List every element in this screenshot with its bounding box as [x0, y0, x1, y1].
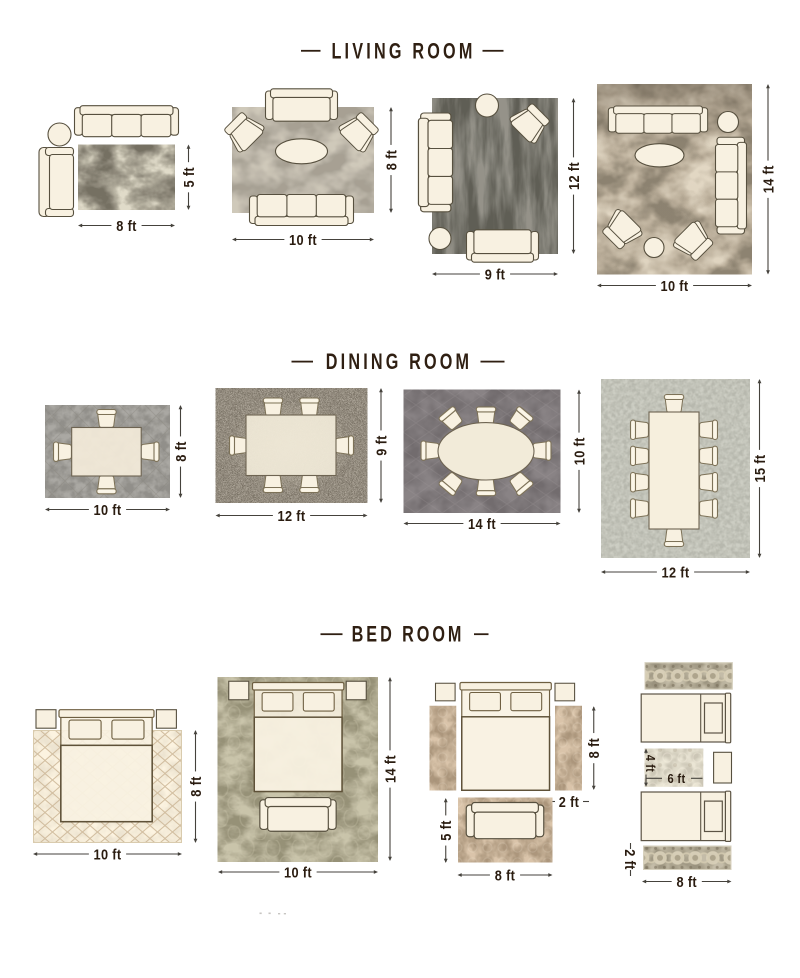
svg-text:9 ft: 9 ft: [372, 435, 389, 455]
svg-text:8 ft: 8 ft: [382, 150, 399, 170]
svg-text:14 ft: 14 ft: [759, 165, 776, 193]
svg-text:9 ft: 9 ft: [485, 265, 505, 282]
svg-text:15 ft: 15 ft: [751, 455, 768, 483]
svg-text:10 ft: 10 ft: [94, 501, 122, 518]
svg-text:12 ft: 12 ft: [565, 162, 582, 190]
svg-text:8 ft: 8 ft: [116, 217, 136, 234]
svg-text:10 ft: 10 ft: [570, 437, 587, 465]
svg-text:6 ft: 6 ft: [668, 771, 686, 786]
svg-text:8 ft: 8 ft: [495, 866, 515, 883]
svg-text:8 ft: 8 ft: [187, 776, 204, 796]
svg-text:10 ft: 10 ft: [284, 863, 312, 880]
svg-text:5 ft: 5 ft: [437, 820, 454, 840]
svg-text:14 ft: 14 ft: [468, 515, 496, 532]
svg-text:12 ft: 12 ft: [662, 563, 690, 580]
svg-text:4 ft: 4 ft: [643, 755, 657, 772]
svg-text:2 ft: 2 ft: [622, 849, 639, 869]
svg-text:8 ft: 8 ft: [677, 873, 697, 890]
svg-text:DINING ROOM: DINING ROOM: [326, 350, 472, 375]
svg-text:LIVING ROOM: LIVING ROOM: [331, 39, 475, 64]
svg-text:8 ft: 8 ft: [172, 441, 189, 461]
svg-text:12 ft: 12 ft: [278, 507, 306, 524]
svg-text:BED ROOM: BED ROOM: [352, 622, 465, 647]
svg-text:10 ft: 10 ft: [661, 277, 689, 294]
svg-text:10 ft: 10 ft: [289, 231, 317, 248]
svg-text:5 ft: 5 ft: [180, 167, 197, 187]
svg-text:2 ft: 2 ft: [559, 793, 579, 810]
svg-text:14 ft: 14 ft: [381, 755, 398, 783]
svg-text:10 ft: 10 ft: [94, 845, 122, 862]
svg-text:8 ft: 8 ft: [585, 738, 602, 758]
